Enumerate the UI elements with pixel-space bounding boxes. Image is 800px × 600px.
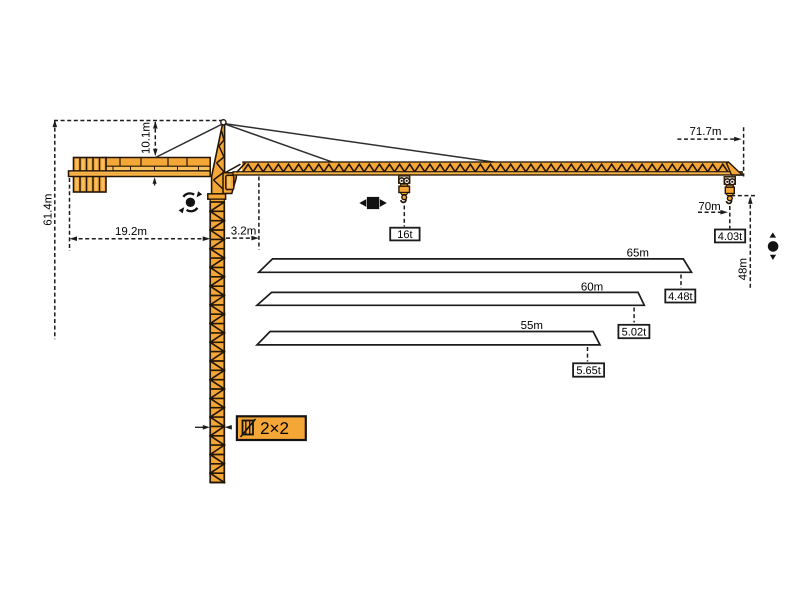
svg-text:70m: 70m [698, 201, 720, 213]
svg-text:60m: 60m [581, 281, 603, 293]
svg-text:71.7m: 71.7m [690, 126, 722, 138]
svg-text:19.2m: 19.2m [115, 226, 147, 238]
svg-text:4.03t: 4.03t [718, 231, 742, 243]
svg-text:48m: 48m [737, 258, 749, 280]
svg-text:2×2: 2×2 [260, 419, 289, 438]
svg-text:5.02t: 5.02t [622, 326, 646, 338]
svg-text:16t: 16t [397, 229, 412, 241]
svg-text:5.65t: 5.65t [576, 365, 600, 377]
svg-text:61.4m: 61.4m [42, 194, 54, 226]
svg-text:4.48t: 4.48t [668, 291, 692, 303]
svg-text:3.2m: 3.2m [231, 226, 257, 238]
svg-text:10.1m: 10.1m [140, 122, 152, 154]
svg-text:65m: 65m [627, 248, 649, 260]
svg-text:55m: 55m [521, 320, 543, 332]
